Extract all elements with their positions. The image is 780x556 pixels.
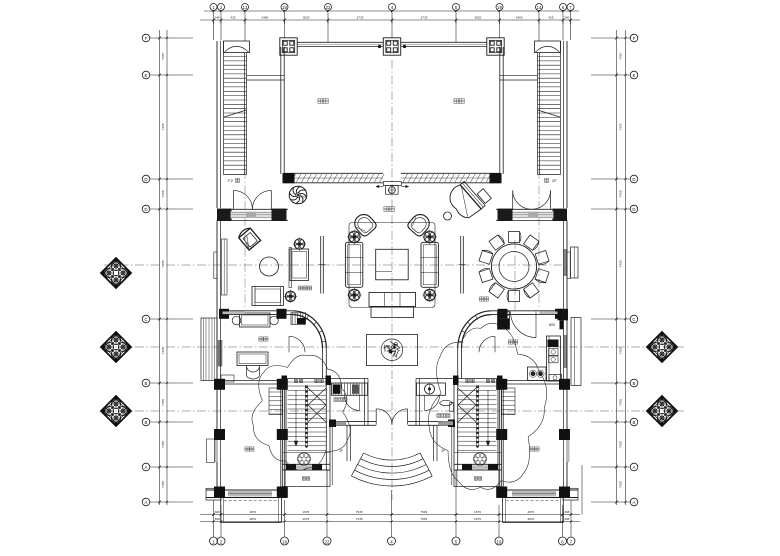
svg-text:F: F xyxy=(145,36,148,41)
svg-text:7425: 7425 xyxy=(619,441,623,448)
svg-text:7545: 7545 xyxy=(420,517,427,521)
svg-text:800: 800 xyxy=(549,323,555,327)
svg-text:18: 18 xyxy=(282,539,287,544)
svg-text:1675: 1675 xyxy=(474,517,481,521)
svg-text:14: 14 xyxy=(537,5,542,10)
svg-text:308: 308 xyxy=(564,510,569,514)
svg-text:3025: 3025 xyxy=(474,15,481,19)
svg-text:3F: 3F xyxy=(339,449,343,453)
svg-text:22: 22 xyxy=(326,5,331,10)
svg-text:1675: 1675 xyxy=(302,517,309,521)
svg-text:7425: 7425 xyxy=(619,347,623,354)
svg-text:F: F xyxy=(633,36,636,41)
svg-text:7545: 7545 xyxy=(356,517,363,521)
svg-text:7425: 7425 xyxy=(161,441,165,448)
svg-text:D: D xyxy=(144,177,147,182)
svg-text:7425: 7425 xyxy=(619,53,623,60)
svg-text:22: 22 xyxy=(325,539,330,544)
svg-text:7425: 7425 xyxy=(619,123,623,130)
svg-text:308: 308 xyxy=(215,510,220,514)
svg-text:7425: 7425 xyxy=(161,123,165,130)
svg-text:4870: 4870 xyxy=(527,510,534,514)
svg-text:A: A xyxy=(633,500,636,505)
svg-text:308: 308 xyxy=(215,517,220,521)
svg-text:3725: 3725 xyxy=(421,15,428,19)
svg-text:7425: 7425 xyxy=(161,190,165,197)
svg-text:7425: 7425 xyxy=(619,399,623,406)
svg-text:7545: 7545 xyxy=(356,510,363,514)
svg-text:3F: 3F xyxy=(441,449,445,453)
svg-text:A: A xyxy=(633,465,636,470)
svg-text:4870: 4870 xyxy=(527,517,534,521)
svg-text:7425: 7425 xyxy=(619,190,623,197)
svg-text:F2: F2 xyxy=(228,178,233,183)
svg-text:E: E xyxy=(145,73,148,78)
svg-text:7425: 7425 xyxy=(161,347,165,354)
svg-text:425: 425 xyxy=(548,15,553,19)
svg-text:3025: 3025 xyxy=(303,15,310,19)
svg-text:B: B xyxy=(145,420,148,425)
svg-text:D: D xyxy=(632,177,635,182)
svg-text:B: B xyxy=(145,381,148,386)
svg-text:A: A xyxy=(145,465,148,470)
svg-text:19: 19 xyxy=(497,539,502,544)
svg-text:240: 240 xyxy=(215,15,220,19)
svg-text:B: B xyxy=(633,420,636,425)
svg-text:3725: 3725 xyxy=(357,15,364,19)
svg-text:2F: 2F xyxy=(552,178,557,183)
svg-text:C: C xyxy=(632,317,635,322)
svg-text:13: 13 xyxy=(243,5,248,10)
svg-text:D: D xyxy=(144,207,147,212)
svg-text:E: E xyxy=(633,73,636,78)
svg-text:3700: 3700 xyxy=(298,195,305,199)
svg-text:7545: 7545 xyxy=(420,510,427,514)
svg-text:7425: 7425 xyxy=(619,260,623,267)
svg-text:2460: 2460 xyxy=(261,15,268,19)
svg-text:18: 18 xyxy=(282,5,287,10)
svg-text:B: B xyxy=(633,381,636,386)
svg-text:A: A xyxy=(145,500,148,505)
svg-text:D: D xyxy=(632,207,635,212)
svg-text:7425: 7425 xyxy=(161,399,165,406)
svg-text:1675: 1675 xyxy=(474,510,481,514)
svg-text:4870: 4870 xyxy=(249,510,256,514)
svg-text:240: 240 xyxy=(564,15,569,19)
svg-text:C: C xyxy=(144,317,147,322)
svg-text:308: 308 xyxy=(564,517,569,521)
svg-text:19: 19 xyxy=(497,5,502,10)
svg-text:7425: 7425 xyxy=(619,481,623,488)
svg-text:7425: 7425 xyxy=(161,260,165,267)
svg-text:1675: 1675 xyxy=(302,510,309,514)
svg-text:2460: 2460 xyxy=(516,15,523,19)
svg-text:425: 425 xyxy=(230,15,235,19)
svg-text:7425: 7425 xyxy=(161,481,165,488)
svg-text:4870: 4870 xyxy=(249,517,256,521)
svg-text:7425: 7425 xyxy=(161,53,165,60)
